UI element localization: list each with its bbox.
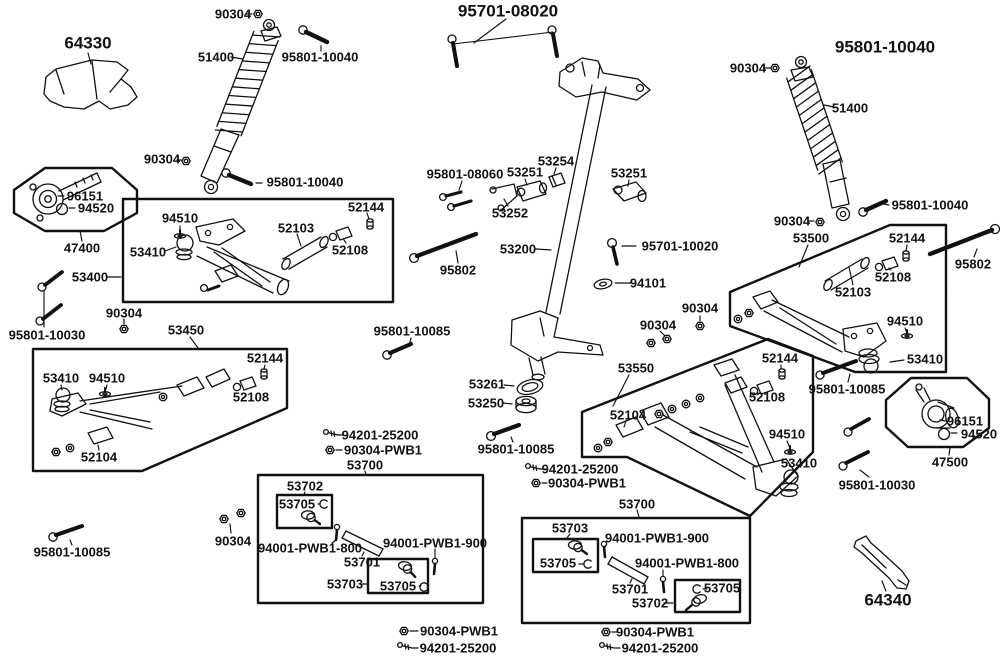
nut-icon [182, 157, 190, 164]
bushing-icon [367, 219, 373, 229]
lower-arm-left-box-53450 [33, 349, 287, 471]
part-label-52108: 52108 [332, 244, 368, 257]
parts-line-art [0, 0, 1000, 656]
part-label-52144: 52144 [889, 232, 925, 245]
part-label-53450: 53450 [168, 324, 204, 337]
part-label-51400: 51400 [832, 102, 868, 115]
part-label-53550: 53550 [618, 362, 654, 375]
part-label-64340: 64340 [864, 592, 911, 609]
bushing-icon [903, 251, 909, 261]
part-label-53252: 53252 [492, 207, 528, 220]
nut-icon [120, 325, 128, 332]
ring-icon [159, 393, 167, 401]
part-label-52103: 52103 [835, 286, 871, 299]
part-label-90304-pwb1: 90304-PWB1 [548, 477, 626, 490]
part-label-53703: 53703 [327, 578, 363, 591]
snap-ring-icon [320, 500, 327, 508]
part-label-94101: 94101 [630, 277, 666, 290]
screw-icon [398, 643, 412, 650]
part-label-95801-10030: 95801-10030 [9, 329, 86, 342]
part-label-90304-pwb1: 90304-PWB1 [420, 625, 498, 638]
part-label-95801-10030: 95801-10030 [839, 479, 916, 492]
part-label-95801-10085: 95801-10085 [478, 443, 555, 456]
part-label-52103: 52103 [278, 222, 314, 235]
part-label-52104: 52104 [610, 409, 646, 422]
part-label-64330: 64330 [64, 35, 111, 52]
ball-joint-icon [302, 511, 321, 524]
nut-icon [602, 628, 610, 635]
part-label-90304: 90304 [215, 8, 251, 21]
part-label-94510: 94510 [769, 428, 805, 441]
screw-icon [600, 643, 614, 650]
part-label-53254: 53254 [538, 155, 574, 168]
part-label-53705: 53705 [704, 582, 740, 595]
part-label-52108: 52108 [749, 391, 785, 404]
washer-icon [785, 446, 796, 454]
handlebar-holder-bolts-drawing [448, 26, 557, 66]
part-label-95701-08020: 95701-08020 [458, 3, 558, 20]
part-label-53410: 53410 [43, 372, 79, 385]
part-label-94510: 94510 [162, 212, 198, 225]
part-label-95801-10040: 95801-10040 [835, 39, 935, 56]
ball-joint-icon [397, 561, 418, 577]
part-label-95801-10040: 95801-10040 [282, 51, 359, 64]
ring-icon [734, 315, 742, 323]
part-label-95801-10085: 95801-10085 [374, 325, 451, 338]
part-label-90304: 90304 [106, 307, 142, 320]
part-label-90304-pwb1: 90304-PWB1 [344, 444, 422, 457]
part-label-53410: 53410 [130, 246, 166, 259]
nut-icon [663, 335, 671, 342]
part-label-52108: 52108 [233, 391, 269, 404]
part-label-53410: 53410 [907, 353, 943, 366]
part-label-94520: 94520 [78, 202, 114, 215]
part-label-52144: 52144 [247, 352, 283, 365]
nut-icon [745, 309, 753, 316]
snap-ring-icon [420, 583, 427, 591]
part-label-90304: 90304 [730, 62, 766, 75]
part-label-90304: 90304 [215, 535, 251, 548]
lower-arm-left-drawing [50, 369, 267, 456]
part-label-47500: 47500 [932, 456, 968, 469]
part-label-95802: 95802 [440, 264, 476, 277]
part-label-95701-10020: 95701-10020 [642, 240, 719, 253]
part-label-94201-25200: 94201-25200 [342, 429, 419, 442]
snap-ring-icon [693, 585, 700, 593]
ring-icon [668, 405, 676, 413]
part-label-51400: 51400 [198, 51, 234, 64]
part-label-47400: 47400 [64, 242, 100, 255]
nut-icon [237, 509, 245, 516]
part-label-53702: 53702 [287, 480, 323, 493]
part-label-95801-10085: 95801-10085 [34, 546, 111, 559]
washer-icon [100, 388, 111, 396]
part-label-53703: 53703 [552, 522, 588, 535]
part-label-52144: 52144 [762, 352, 798, 365]
part-label-53261: 53261 [469, 378, 505, 391]
ring-icon [66, 444, 74, 452]
bushing-icon [779, 369, 785, 379]
nut-icon [254, 10, 262, 17]
snap-ring-icon [584, 560, 591, 568]
parts-diagram-canvas: 64330 90304 95801-10040 51400 90304 9580… [0, 0, 1000, 656]
part-label-53702: 53702 [632, 597, 668, 610]
part-label-53705: 53705 [540, 557, 576, 570]
nut-icon [696, 322, 704, 329]
part-label-53251: 53251 [611, 167, 647, 180]
part-label-52144: 52144 [348, 201, 384, 214]
nut-icon [647, 339, 655, 346]
bushing-icon [261, 369, 267, 379]
part-label-53705: 53705 [380, 580, 416, 593]
part-label-94510: 94510 [887, 315, 923, 328]
part-label-90304: 90304 [144, 153, 180, 166]
part-label-53500: 53500 [793, 232, 829, 245]
ring-icon [594, 444, 602, 452]
part-label-53200: 53200 [500, 243, 536, 256]
part-label-95801-10040: 95801-10040 [267, 176, 344, 189]
dust-seal-ring-94520 [939, 429, 950, 440]
upper-arm-left-drawing [175, 219, 374, 296]
part-label-95801-08060: 95801-08060 [427, 168, 504, 181]
steering-stem-drawing [511, 58, 650, 380]
part-label-94201-25200: 94201-25200 [420, 642, 497, 655]
part-label-53701: 53701 [612, 583, 648, 596]
screw-icon [526, 464, 540, 471]
washer-icon [902, 330, 913, 338]
nut-icon [326, 446, 334, 453]
part-label-53410: 53410 [781, 457, 817, 470]
nut-icon [52, 448, 60, 455]
part-label-52104: 52104 [81, 451, 117, 464]
part-label-53701: 53701 [344, 556, 380, 569]
knuckle-right-drawing [916, 384, 960, 440]
nut-icon [220, 515, 228, 522]
part-label-52108: 52108 [875, 271, 911, 284]
part-label-94201-25200: 94201-25200 [622, 642, 699, 655]
part-label-94520: 94520 [961, 428, 997, 441]
mud-guard-left-64330 [44, 60, 137, 109]
part-label-94001-pwb1-800: 94001-PWB1-800 [258, 542, 362, 555]
nut-icon [400, 627, 408, 634]
ring-icon [696, 394, 704, 402]
part-label-90304: 90304 [774, 215, 810, 228]
ring-icon [682, 400, 690, 408]
part-label-90304: 90304 [640, 319, 676, 332]
part-label-90304-pwb1: 90304-PWB1 [616, 626, 694, 639]
part-label-53700: 53700 [619, 498, 655, 511]
part-label-94001-pwb1-900: 94001-PWB1-900 [383, 537, 487, 550]
ball-joint-icon [569, 541, 588, 554]
part-label-53705: 53705 [279, 498, 315, 511]
nut-icon [655, 410, 663, 417]
part-label-95801-10085: 95801-10085 [809, 383, 886, 396]
washer-icon [175, 230, 186, 238]
nut-icon [532, 479, 540, 486]
screw-icon [324, 430, 338, 437]
part-label-95802: 95802 [955, 258, 991, 271]
part-label-94001-pwb1-900: 94001-PWB1-900 [605, 532, 709, 545]
part-label-53250: 53250 [468, 397, 504, 410]
part-label-53700: 53700 [347, 459, 383, 472]
part-label-94201-25200: 94201-25200 [542, 463, 619, 476]
part-label-95801-10040: 95801-10040 [892, 199, 969, 212]
nut-icon [604, 438, 612, 445]
part-label-94510: 94510 [89, 372, 125, 385]
nut-icon [816, 218, 824, 225]
part-label-53400: 53400 [72, 271, 108, 284]
part-label-94001-pwb1-800: 94001-PWB1-800 [635, 557, 739, 570]
part-label-90304: 90304 [682, 302, 718, 315]
nut-icon [771, 64, 779, 71]
